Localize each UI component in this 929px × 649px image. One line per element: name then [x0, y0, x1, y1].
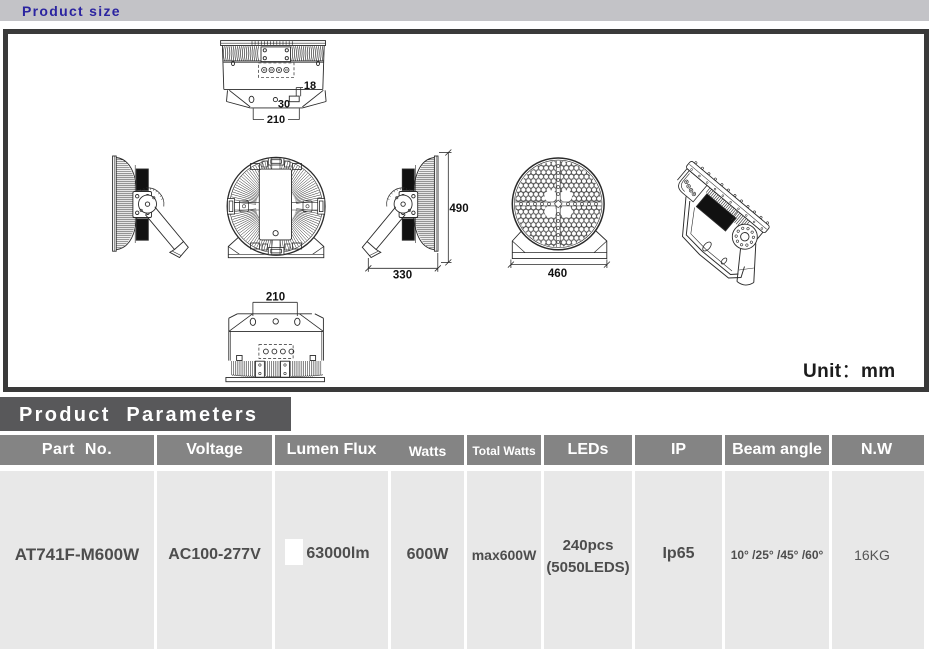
svg-text:18: 18 [304, 80, 316, 92]
svg-text:210: 210 [267, 114, 285, 126]
svg-text:330: 330 [393, 270, 412, 282]
svg-text:490: 490 [449, 203, 468, 215]
svg-text:30: 30 [278, 99, 290, 111]
svg-text:210: 210 [266, 292, 285, 304]
svg-text:460: 460 [548, 268, 567, 280]
